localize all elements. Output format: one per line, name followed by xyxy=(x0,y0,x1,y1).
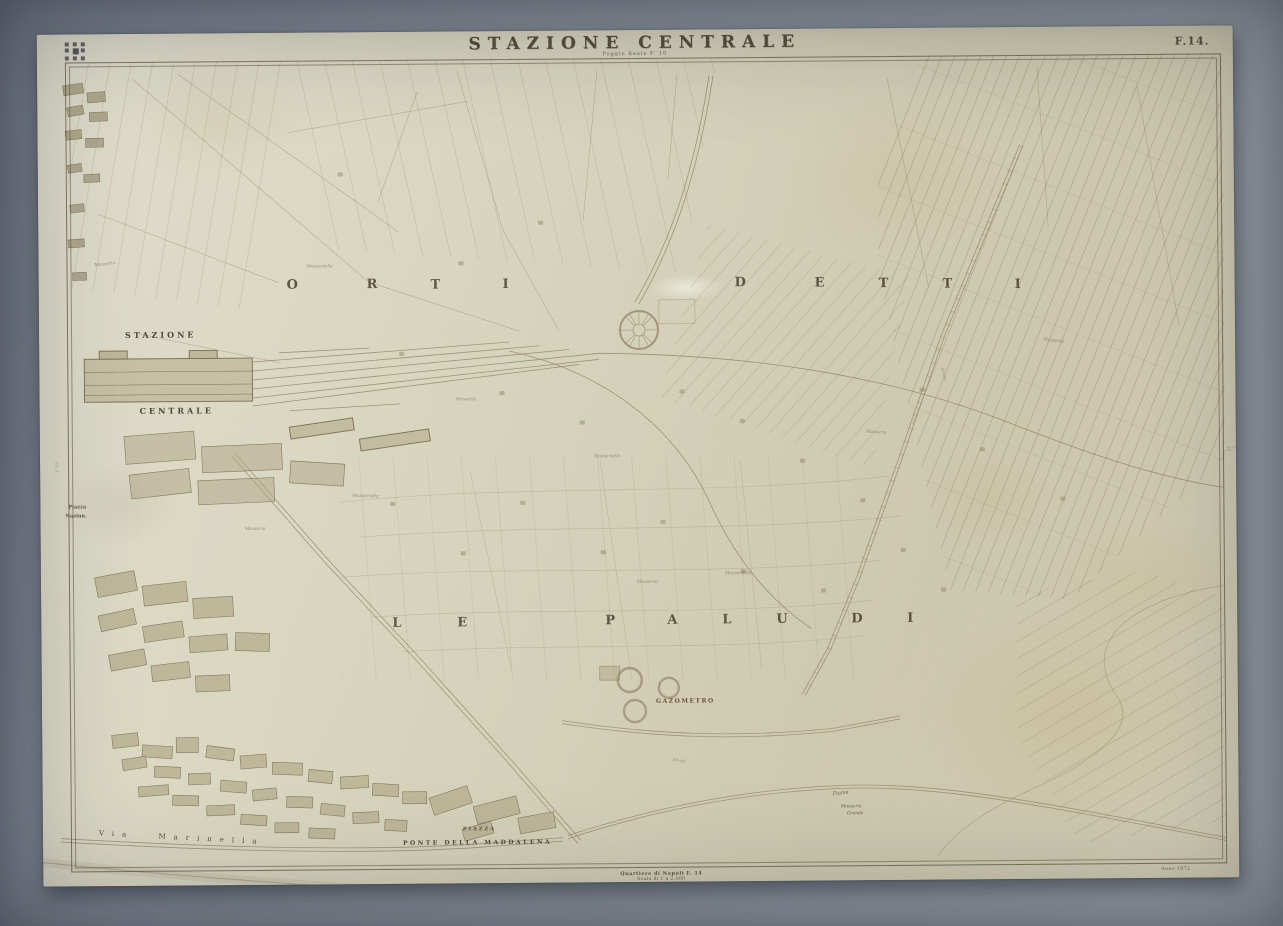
district-letter: P xyxy=(605,613,615,628)
district-letter: L xyxy=(392,616,401,631)
margin-ref-right: F. 15 xyxy=(1226,446,1236,455)
district-letter: E xyxy=(815,276,825,291)
district-letter: E xyxy=(457,615,467,630)
farm-label: Masseria xyxy=(245,527,266,532)
field-parcels-paludi xyxy=(340,453,872,682)
farmhouse-marks xyxy=(338,167,1066,597)
district-letter: I xyxy=(503,277,509,292)
imprint-line2: Scala di 1 a 2.000 xyxy=(571,876,751,882)
district-letter: D xyxy=(851,611,862,626)
field-parcels-right xyxy=(877,53,1226,601)
label-centrale: CENTRALE xyxy=(140,405,214,416)
label-piazza: PIAZZA xyxy=(463,826,496,832)
gasometer-circles xyxy=(600,666,679,723)
railway-tracks xyxy=(250,71,1224,633)
river-line xyxy=(936,585,1226,855)
field-parcels-topleft xyxy=(67,61,284,313)
district-letter: T xyxy=(879,276,889,291)
district-letter: O xyxy=(287,278,298,293)
farm-label: Masserielle xyxy=(352,494,379,500)
district-letter: T xyxy=(431,278,441,293)
margin-ref-left: F. 13 xyxy=(54,462,59,472)
label-fiume: Fiume xyxy=(832,790,849,798)
district-letter: I xyxy=(1015,277,1021,292)
label-masseria-grande: Masseria xyxy=(841,804,862,809)
label-via-marinella: Via Marinella xyxy=(99,829,265,846)
map-sheet: STAZIONE CENTRALE Poggio Reale F. 10 F.1… xyxy=(37,25,1240,886)
district-letter: R xyxy=(367,277,378,292)
archive-stamp-icon xyxy=(65,42,87,60)
farm-label: Masserielle xyxy=(725,571,751,576)
urban-blocks-topleft xyxy=(62,83,108,281)
farm-label: Masserielle xyxy=(306,264,332,269)
farm-label: Masserielle xyxy=(594,454,620,459)
road-label: Strada xyxy=(940,367,949,381)
urban-blocks xyxy=(93,428,556,844)
drainage-canals xyxy=(340,458,902,680)
district-letter: U xyxy=(776,612,787,627)
anno-label: Anno 1872 xyxy=(1161,867,1190,872)
farm-label: Masseria xyxy=(866,429,887,435)
label-stazione: STAZIONE xyxy=(125,329,197,340)
field-boundaries xyxy=(97,66,1179,364)
district-letter: I xyxy=(907,611,913,626)
label-gazometro: GAZOMETRO xyxy=(656,697,715,704)
scale-bar xyxy=(433,885,1008,887)
label-piazza-nazionale: Piazza xyxy=(68,504,86,510)
district-letter: L xyxy=(722,612,731,627)
sheet-number: F.14. xyxy=(1175,34,1210,47)
map-border-outer xyxy=(65,53,1227,872)
label-ponte-della-maddalena: PONTE DELLA MADDALENA xyxy=(403,839,552,847)
station-building xyxy=(84,349,430,454)
district-letter: T xyxy=(943,277,953,292)
imprint: Quartiere di Napoli F. 14 Scala di 1 a 2… xyxy=(571,870,751,882)
label-masseria-grande: Grande xyxy=(847,811,864,816)
field-parcels-top xyxy=(287,57,719,275)
district-letter: A xyxy=(667,613,677,628)
map-border-inner xyxy=(69,57,1223,868)
farm-label: Masseria xyxy=(94,261,115,268)
roads xyxy=(56,143,1226,853)
district-letter: D xyxy=(735,275,746,290)
field-parcels-right-low xyxy=(1016,570,1226,844)
roundhouse-icon xyxy=(620,311,658,349)
farm-label: Masseria xyxy=(637,580,658,585)
coastline xyxy=(43,860,383,887)
photo-background: STAZIONE CENTRALE Poggio Reale F. 10 F.1… xyxy=(0,0,1283,926)
label-piazza-nazionale: Nazion. xyxy=(65,513,86,519)
farm-label: Masseria xyxy=(1043,337,1064,345)
map-linework xyxy=(37,25,1240,886)
farm-label: Masseria xyxy=(456,397,477,402)
road-label: Strada xyxy=(672,757,686,764)
